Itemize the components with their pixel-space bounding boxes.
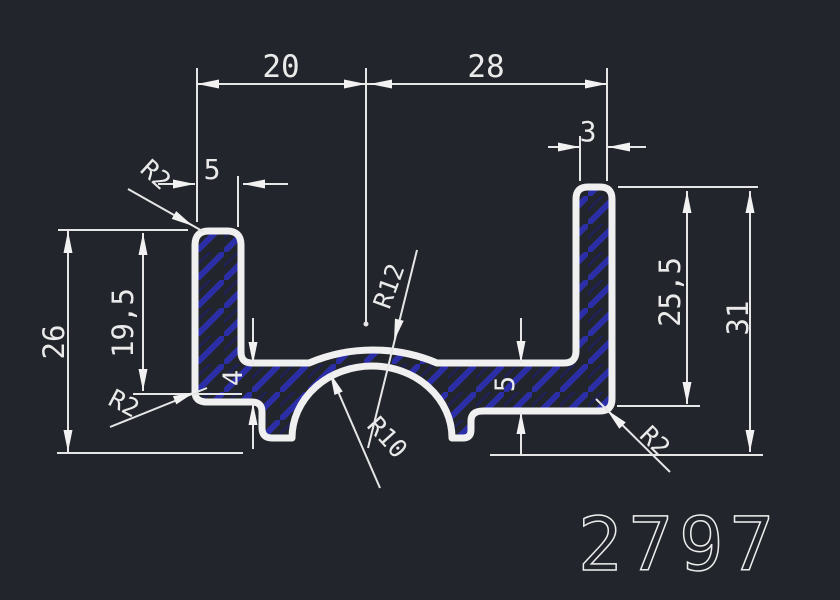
arrowhead xyxy=(746,430,755,452)
arrowhead xyxy=(604,407,626,429)
dim-left-inner-height: 19,5 xyxy=(106,288,140,358)
ext-line-end-dot xyxy=(364,322,369,327)
arrowhead xyxy=(64,430,73,452)
cad-drawing-view: 20 28 3 5 26 19,5 4 5 25,5 31 R2 R2 R2 R… xyxy=(0,0,840,600)
arrowhead xyxy=(683,382,692,404)
label-fillet-top-left: R2 xyxy=(135,154,177,196)
label-fillet-bottom-left: R2 xyxy=(104,384,144,424)
dim-left-wall-thickness: 5 xyxy=(204,153,221,186)
dim-width-left: 20 xyxy=(262,49,299,85)
label-arch-inner-radius: R10 xyxy=(361,411,413,464)
arrowhead xyxy=(139,369,148,391)
dim-width-right: 28 xyxy=(467,49,504,85)
dim-right-wall-thickness: 3 xyxy=(580,115,597,148)
arrowhead xyxy=(344,80,366,89)
arrowhead xyxy=(683,191,692,213)
dim-right-outer-height: 31 xyxy=(721,301,755,336)
dim-right-inner-height: 25,5 xyxy=(653,257,687,327)
leader-r2-top-left xyxy=(128,189,204,232)
dimension-labels: 20 28 3 5 26 19,5 4 5 25,5 31 R2 R2 R2 R… xyxy=(37,49,755,464)
dim-base-thickness-right: 5 xyxy=(490,376,521,392)
profile-outline xyxy=(195,187,612,438)
dimension-arrows xyxy=(64,80,755,453)
arrowhead xyxy=(517,412,526,434)
part-number: 2797 xyxy=(578,502,780,588)
profile-section xyxy=(195,187,612,438)
arrowhead xyxy=(746,191,755,213)
arrowhead xyxy=(243,180,265,189)
arrowhead xyxy=(558,143,580,152)
arrowhead xyxy=(370,80,392,89)
arrowhead xyxy=(197,80,219,89)
cad-drawing-svg: 20 28 3 5 26 19,5 4 5 25,5 31 R2 R2 R2 R… xyxy=(0,0,840,600)
arrowhead xyxy=(390,319,404,343)
arrowhead xyxy=(172,211,196,230)
dim-base-thickness-left: 4 xyxy=(218,370,249,386)
arrowhead xyxy=(139,233,148,255)
dim-left-outer-height: 26 xyxy=(37,325,71,360)
arrowhead xyxy=(173,180,195,189)
arrowhead xyxy=(585,80,607,89)
arrowhead xyxy=(64,231,73,253)
arrowhead xyxy=(608,143,630,152)
